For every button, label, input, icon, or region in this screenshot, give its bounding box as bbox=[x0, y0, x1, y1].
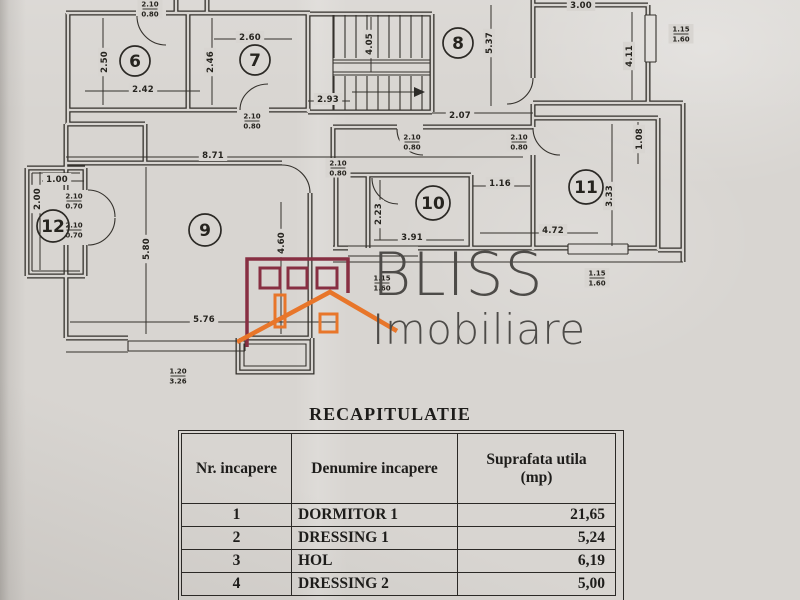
svg-text:0.80: 0.80 bbox=[329, 170, 346, 178]
recap-table: Nr. incapere Denumire incapere Suprafata… bbox=[178, 430, 624, 600]
room-number-circle: 6 bbox=[120, 46, 150, 76]
dimension-label: 3.00 bbox=[567, 0, 595, 11]
svg-text:2.10: 2.10 bbox=[403, 134, 420, 142]
table-row: 1DORMITOR 121,65 bbox=[182, 504, 616, 527]
dimension-label: 2.46 bbox=[204, 48, 216, 76]
svg-text:1.20: 1.20 bbox=[169, 368, 186, 376]
room-number-circle: 11 bbox=[569, 170, 603, 204]
svg-text:3.00: 3.00 bbox=[570, 1, 592, 11]
recap-title: RECAPITULATIE bbox=[230, 404, 550, 425]
opening-size-label: 2.100.80 bbox=[326, 158, 351, 178]
svg-text:8.71: 8.71 bbox=[202, 151, 224, 161]
svg-text:6: 6 bbox=[129, 52, 141, 72]
room-number-circle: 8 bbox=[443, 28, 473, 58]
table-header-row: Nr. incapere Denumire incapere Suprafata… bbox=[182, 434, 616, 504]
svg-text:0.80: 0.80 bbox=[403, 144, 420, 152]
table-cell: 4 bbox=[182, 573, 292, 596]
dimension-label: 2.23 bbox=[372, 200, 384, 228]
svg-text:1.00: 1.00 bbox=[46, 175, 68, 185]
opening-size-label: 1.151.60 bbox=[585, 268, 610, 288]
svg-text:7: 7 bbox=[249, 51, 261, 71]
svg-text:5.76: 5.76 bbox=[193, 315, 215, 325]
opening-size-label: 2.100.80 bbox=[507, 132, 532, 152]
opening-size-label: 1.151.60 bbox=[669, 24, 694, 44]
room-number-circle: 10 bbox=[416, 186, 450, 220]
table-cell: 5,00 bbox=[458, 573, 616, 596]
svg-text:2.93: 2.93 bbox=[317, 95, 339, 105]
svg-text:8: 8 bbox=[452, 34, 464, 54]
svg-text:1.16: 1.16 bbox=[489, 179, 511, 189]
svg-text:11: 11 bbox=[574, 178, 598, 198]
dimension-label: 2.00 bbox=[31, 185, 43, 213]
dimension-label: 2.42 bbox=[129, 83, 157, 95]
svg-text:0.80: 0.80 bbox=[141, 11, 158, 19]
svg-text:5.80: 5.80 bbox=[142, 238, 152, 260]
col-header-name: Denumire incapere bbox=[292, 434, 458, 504]
dimension-label: 8.71 bbox=[199, 149, 227, 161]
svg-text:2.23: 2.23 bbox=[374, 203, 384, 225]
dimension-label: 4.05 bbox=[363, 30, 375, 58]
table-cell: DRESSING 2 bbox=[292, 573, 458, 596]
opening-size-label: 2.100.80 bbox=[400, 132, 425, 152]
dimension-label: 4.72 bbox=[539, 224, 567, 236]
svg-text:2.10: 2.10 bbox=[329, 160, 346, 168]
svg-text:2.50: 2.50 bbox=[100, 51, 110, 73]
dimension-label: 3.33 bbox=[603, 182, 615, 210]
table-row: 3HOL6,19 bbox=[182, 550, 616, 573]
svg-text:1.60: 1.60 bbox=[588, 280, 605, 288]
table-cell: 3 bbox=[182, 550, 292, 573]
svg-text:1.15: 1.15 bbox=[588, 270, 605, 278]
svg-text:1.15: 1.15 bbox=[672, 26, 689, 34]
agency-watermark: BLISS Imobiliare bbox=[237, 246, 577, 356]
dimension-label: 4.11 bbox=[623, 42, 635, 70]
svg-text:2.10: 2.10 bbox=[510, 134, 527, 142]
table-cell: DORMITOR 1 bbox=[292, 504, 458, 527]
svg-text:0.70: 0.70 bbox=[65, 203, 82, 211]
svg-text:1.08: 1.08 bbox=[635, 128, 645, 150]
dimension-label: 2.07 bbox=[446, 109, 474, 121]
col-header-area: Suprafata utila (mp) bbox=[458, 434, 616, 504]
room-number-circle: 7 bbox=[240, 45, 270, 75]
table-cell: 21,65 bbox=[458, 504, 616, 527]
svg-text:2.00: 2.00 bbox=[33, 188, 43, 210]
scanned-floor-plan-page: 2.100.802.100.802.100.802.100.802.100.80… bbox=[0, 0, 800, 600]
table-cell: 5,24 bbox=[458, 527, 616, 550]
logo-text: BLISS Imobiliare bbox=[372, 248, 586, 354]
svg-text:4.72: 4.72 bbox=[542, 226, 564, 236]
logo-name: BLISS bbox=[372, 248, 586, 303]
stair-direction-arrow bbox=[414, 87, 425, 97]
table-cell: HOL bbox=[292, 550, 458, 573]
svg-text:4.05: 4.05 bbox=[365, 33, 375, 55]
logo-subtitle: Imobiliare bbox=[372, 305, 586, 354]
svg-text:1.60: 1.60 bbox=[672, 36, 689, 44]
svg-text:2.07: 2.07 bbox=[449, 111, 471, 121]
svg-text:0.80: 0.80 bbox=[510, 144, 527, 152]
dimension-label: 1.00 bbox=[43, 173, 71, 185]
dimension-label: 2.50 bbox=[98, 48, 110, 76]
svg-text:4.11: 4.11 bbox=[625, 45, 635, 67]
dimension-label: 2.60 bbox=[236, 31, 264, 43]
svg-text:10: 10 bbox=[421, 194, 445, 214]
room-number-circle: 9 bbox=[189, 214, 221, 246]
table-cell: 2 bbox=[182, 527, 292, 550]
room-areas-table: Nr. incapere Denumire incapere Suprafata… bbox=[181, 433, 616, 596]
table-cell: 6,19 bbox=[458, 550, 616, 573]
dimension-label: 1.08 bbox=[633, 125, 645, 153]
opening-size-label: 2.100.80 bbox=[138, 0, 163, 19]
svg-text:3.26: 3.26 bbox=[169, 378, 186, 386]
table-cell: 1 bbox=[182, 504, 292, 527]
svg-text:3.33: 3.33 bbox=[605, 185, 615, 207]
svg-text:2.10: 2.10 bbox=[243, 113, 260, 121]
svg-text:2.42: 2.42 bbox=[132, 85, 154, 95]
table-row: 2DRESSING 15,24 bbox=[182, 527, 616, 550]
dimension-label: 1.16 bbox=[486, 177, 514, 189]
table-row: 4DRESSING 25,00 bbox=[182, 573, 616, 596]
dimension-label: 5.37 bbox=[483, 29, 495, 57]
table-cell: DRESSING 1 bbox=[292, 527, 458, 550]
svg-text:0.80: 0.80 bbox=[243, 123, 260, 131]
svg-text:2.10: 2.10 bbox=[141, 1, 158, 9]
dimension-label: 5.80 bbox=[140, 235, 152, 263]
room-number-circle: 12 bbox=[37, 210, 69, 242]
col-header-nr: Nr. incapere bbox=[182, 434, 292, 504]
svg-text:2.10: 2.10 bbox=[65, 193, 82, 201]
svg-text:2.46: 2.46 bbox=[206, 51, 216, 73]
svg-text:5.37: 5.37 bbox=[485, 32, 495, 54]
opening-size-label: 2.100.70 bbox=[62, 191, 87, 211]
dimension-label: 2.93 bbox=[314, 93, 342, 105]
svg-text:2.60: 2.60 bbox=[239, 33, 261, 43]
opening-size-label: 2.100.80 bbox=[240, 111, 265, 131]
svg-text:12: 12 bbox=[41, 217, 65, 237]
dimension-label: 5.76 bbox=[190, 313, 218, 325]
svg-text:9: 9 bbox=[199, 221, 211, 241]
opening-size-label: 1.203.26 bbox=[166, 366, 191, 386]
